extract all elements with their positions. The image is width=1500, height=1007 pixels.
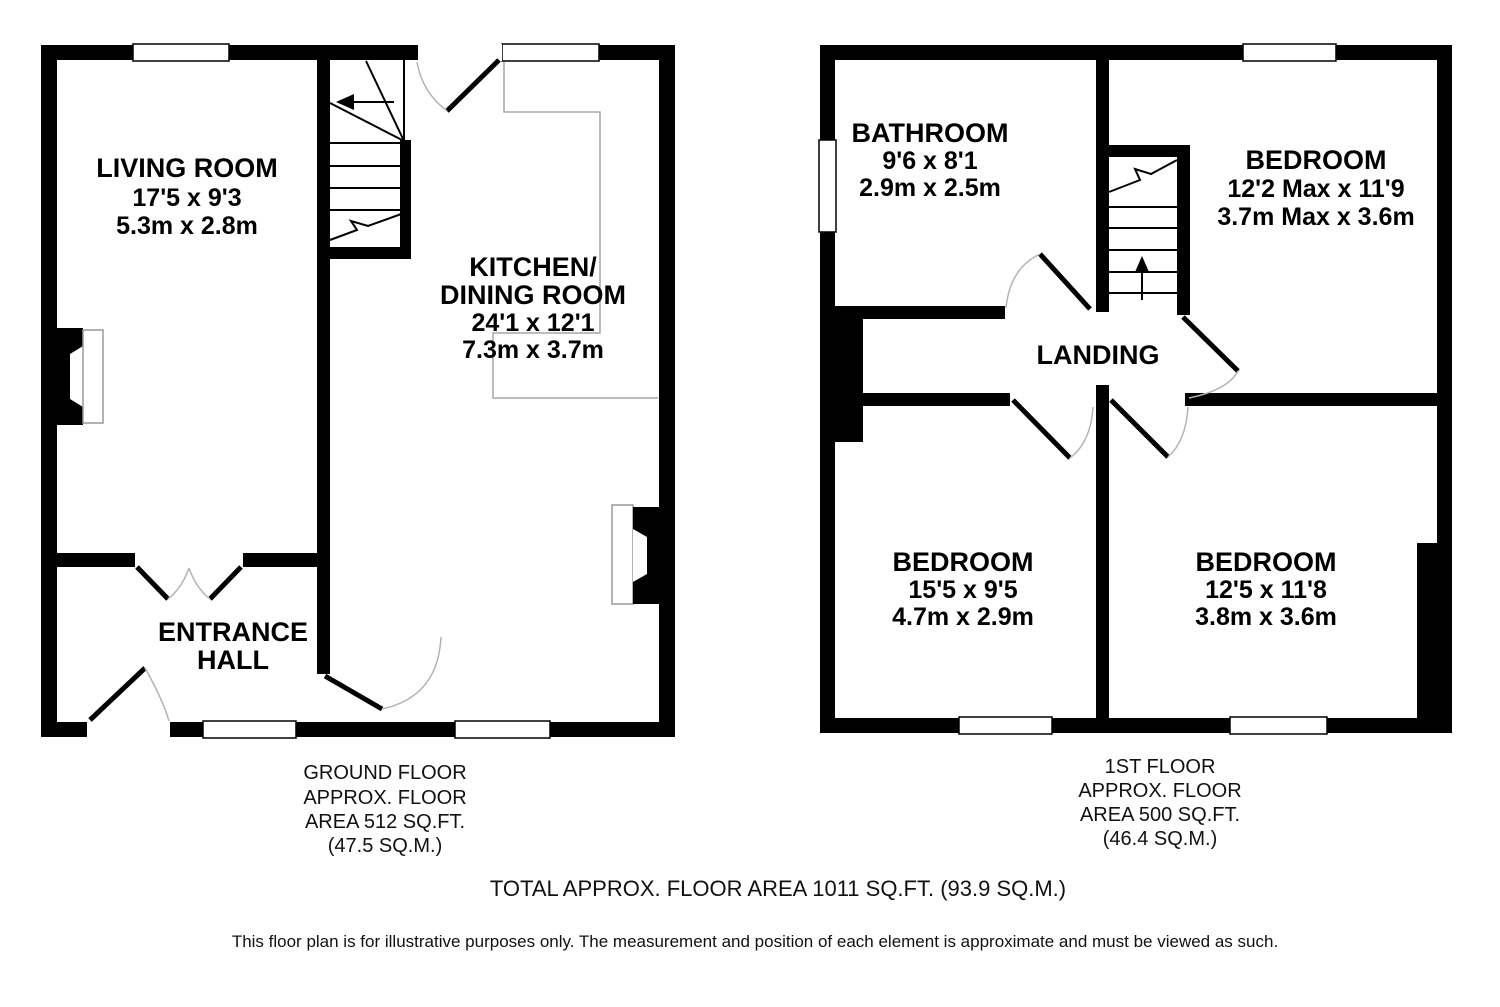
bathroom-label: BATHROOM <box>852 118 1009 148</box>
ground-floor-plan: LIVING ROOM 17'5 x 9'3 5.3m x 2.8m KITCH… <box>41 44 675 857</box>
ground-floor-labels: LIVING ROOM 17'5 x 9'3 5.3m x 2.8m KITCH… <box>96 153 626 675</box>
bedroom-top-right-door <box>1183 317 1238 398</box>
bedroom-bottom-right-door <box>1111 400 1188 457</box>
entrance-hall-label-line1: ENTRANCE <box>158 617 308 647</box>
living-room-double-doors <box>137 567 241 599</box>
bedroom-bottom-right-label: BEDROOM <box>1196 547 1337 577</box>
bedroom-top-right-label: BEDROOM <box>1246 145 1387 175</box>
kitchen-fireplace <box>612 505 659 604</box>
first-floor-caption: 1ST FLOOR APPROX. FLOOR AREA 500 SQ.FT. … <box>1078 756 1241 850</box>
bedroom-top-right-metric: 3.7m Max x 3.6m <box>1217 203 1414 231</box>
disclaimer-text: This floor plan is for illustrative purp… <box>232 932 1278 951</box>
first-floor-caption-line3: AREA 500 SQ.FT. <box>1080 804 1240 826</box>
first-floor-labels: BATHROOM 9'6 x 8'1 2.9m x 2.5m BEDROOM 1… <box>852 118 1415 631</box>
bathroom-door <box>1006 254 1090 309</box>
bathroom-imperial: 9'6 x 8'1 <box>882 147 977 175</box>
floor-plan-page: LIVING ROOM 17'5 x 9'3 5.3m x 2.8m KITCH… <box>0 0 1500 1007</box>
first-floor-caption-line1: 1ST FLOOR <box>1105 756 1216 778</box>
first-floor-plan: BATHROOM 9'6 x 8'1 2.9m x 2.5m BEDROOM 1… <box>819 44 1452 850</box>
footer: TOTAL APPROX. FLOOR AREA 1011 SQ.FT. (93… <box>232 876 1278 951</box>
ground-floor-caption-line3: AREA 512 SQ.FT. <box>305 811 465 833</box>
bedroom-bottom-left-imperial: 15'5 x 9'5 <box>908 576 1017 604</box>
bedroom-bottom-left-metric: 4.7m x 2.9m <box>892 603 1034 631</box>
entrance-hall-label-line2: HALL <box>197 645 269 675</box>
stairs-down-arrow <box>336 94 394 110</box>
bedroom-bottom-right-metric: 3.8m x 3.6m <box>1195 603 1337 631</box>
living-room-metric: 5.3m x 2.8m <box>116 212 258 240</box>
first-floor-staircase <box>1109 160 1177 300</box>
kitchen-metric: 7.3m x 3.7m <box>462 336 604 364</box>
first-floor-caption-line4: (46.4 SQ.M.) <box>1103 828 1217 850</box>
total-floor-area-text: TOTAL APPROX. FLOOR AREA 1011 SQ.FT. (93… <box>490 876 1066 901</box>
ground-floor-caption: GROUND FLOOR APPROX. FLOOR AREA 512 SQ.F… <box>303 762 466 857</box>
bedroom-top-right-imperial: 12'2 Max x 11'9 <box>1227 175 1404 203</box>
back-door <box>417 44 502 111</box>
kitchen-imperial: 24'1 x 12'1 <box>471 309 594 337</box>
living-room-label: LIVING ROOM <box>96 153 278 183</box>
ground-floor-caption-line2: APPROX. FLOOR <box>303 787 466 809</box>
bathroom-metric: 2.9m x 2.5m <box>859 174 1001 202</box>
living-room-imperial: 17'5 x 9'3 <box>132 184 241 212</box>
bedroom-bottom-right-imperial: 12'5 x 11'8 <box>1205 576 1327 604</box>
living-room-fireplace <box>57 328 103 425</box>
ground-floor-exterior-walls <box>41 45 675 737</box>
kitchen-label-line2: DINING ROOM <box>440 280 626 310</box>
bedroom-bottom-left-door <box>1013 400 1093 458</box>
kitchen-door <box>325 637 441 709</box>
first-floor-caption-line2: APPROX. FLOOR <box>1078 780 1241 802</box>
floor-plan-drawing: LIVING ROOM 17'5 x 9'3 5.3m x 2.8m KITCH… <box>0 0 1500 1007</box>
landing-label: LANDING <box>1037 340 1160 370</box>
ground-floor-caption-line1: GROUND FLOOR <box>303 762 466 784</box>
ground-floor-staircase <box>330 60 404 240</box>
ground-floor-caption-line4: (47.5 SQ.M.) <box>328 835 442 857</box>
front-door <box>90 668 169 721</box>
kitchen-label-line1: KITCHEN/ <box>469 252 597 282</box>
bedroom-bottom-left-label: BEDROOM <box>893 547 1034 577</box>
